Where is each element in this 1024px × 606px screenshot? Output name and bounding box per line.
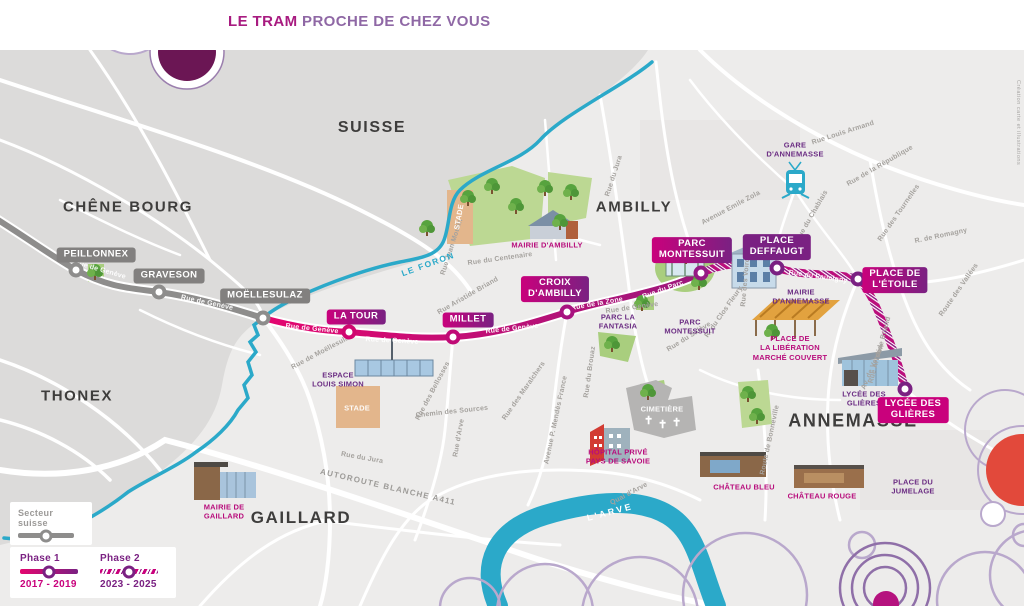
region-label-suisse: SUISSE: [338, 119, 406, 137]
legend-phase1-label: Phase 1: [20, 553, 78, 564]
credits-text: Création carte et illustrations: [1015, 80, 1021, 165]
legend-phase2-line: [100, 569, 158, 574]
region-label-thonex: THONEX: [41, 388, 113, 405]
tram-stop-label-place-de-l-etoile: PLACE DE L'ÉTOILE: [862, 267, 927, 293]
tram-stop-label-la-tour: LA TOUR: [327, 310, 386, 325]
landmark-label-mairie-d-ambilly: MAIRIE D'AMBILLY: [511, 240, 582, 249]
map-canvas: ✝✝✝: [0, 0, 1024, 606]
legend-phase2-stop-dot: [123, 565, 136, 578]
legend-swiss-label: Secteur suisse: [18, 508, 84, 528]
landmark-label-chateau-bleu: CHÂTEAU BLEU: [713, 482, 775, 491]
building-chateau-bleu: [700, 452, 766, 477]
tram-stop-label-millet: MILLET: [443, 313, 494, 328]
landmark-label-gare-d-annemasse: GARE D'ANNEMASSE: [766, 141, 823, 160]
region-label-ambilly: AMBILLY: [596, 199, 672, 216]
legend-phases: Phase 1 2017 - 2019 Phase 2 2023 - 2025: [10, 547, 176, 598]
header-band: LE TRAM PROCHE DE CHEZ VOUS: [0, 0, 1024, 50]
page-title: LE TRAM PROCHE DE CHEZ VOUS: [228, 13, 491, 30]
tram-stop-label-croix-d-ambilly: CROIX D'AMBILLY: [521, 276, 589, 302]
svg-text:✝: ✝: [644, 415, 653, 427]
tram-map-poster: ✝✝✝: [0, 0, 1024, 606]
landmark-label-parc-montessuit: PARC MONTESSUIT: [664, 318, 715, 337]
landmark-label-place-du-jumelage: PLACE DU JUMELAGE: [891, 478, 934, 497]
tram-stop-croix-d-ambilly: [560, 305, 575, 320]
tram-stop-place-deffaugt: [770, 261, 785, 276]
tram-stop-la-tour: [342, 325, 357, 340]
legend-swiss-line: [18, 533, 74, 538]
tram-stop-label-place-deffaugt: PLACE DEFFAUGT: [743, 234, 811, 260]
svg-text:✝: ✝: [658, 419, 667, 431]
tram-stop-lycee-des-glieres: [898, 382, 913, 397]
legend-phase2: Phase 2 2023 - 2025: [100, 553, 158, 592]
building-mairie-gaillard: [194, 462, 256, 500]
landmark-label-mairie-d-annemasse: MAIRIE D'ANNEMASSE: [772, 288, 829, 307]
tram-stop-label-lycee-des-glieres: LYCÉE DES GLIÈRES: [878, 397, 949, 423]
landmark-label-hopital-prive-pays-de-savoie: HÔPITAL PRIVÉ PAYS DE SAVOIE: [586, 448, 650, 467]
landmark-label-chateau-rouge: CHÂTEAU ROUGE: [788, 491, 857, 500]
tram-stop-parc-montessuit: [694, 266, 709, 281]
tram-stop-label-parc-montessuit: PARC MONTESSUIT: [652, 237, 732, 263]
tram-stop-peillonnex: [69, 263, 84, 278]
landmark-label-cimetiere: CIMETIÈRE: [641, 404, 684, 413]
tram-stop-label-moellesulaz: MOËLLESULAZ: [220, 289, 310, 304]
title-rest: PROCHE DE CHEZ VOUS: [302, 13, 490, 30]
decor-circles-bottom-right: [440, 524, 1024, 606]
legend-phase1: Phase 1 2017 - 2019: [20, 553, 78, 592]
legend-swiss-stop-dot: [40, 529, 53, 542]
legend-phase1-years: 2017 - 2019: [20, 579, 78, 590]
landmark-label-espace-louis-simon: ESPACE LOUIS SIMON: [312, 371, 364, 390]
landmark-label-place-de-la-liberation-marche-couvert: PLACE DE LA LIBÉRATION MARCHÉ COUVERT: [753, 334, 827, 362]
landmark-label-parc-la-fantasia: PARC LA FANTASIA: [599, 313, 638, 332]
landmark-label-mairie-de-gaillard: MAIRIE DE GAILLARD: [204, 503, 245, 522]
region-label-chene-bourg: CHÊNE BOURG: [63, 199, 193, 216]
title-bold: LE TRAM: [228, 13, 297, 30]
legend-phase2-label: Phase 2: [100, 553, 158, 564]
tram-stop-graveson: [152, 285, 167, 300]
tram-stop-label-peillonnex: PEILLONNEX: [57, 248, 136, 263]
tram-stop-label-graveson: GRAVESON: [134, 269, 205, 284]
legend-phase1-line: [20, 569, 78, 574]
legend-swiss-sector: Secteur suisse: [10, 502, 92, 545]
legend-phase1-stop-dot: [43, 565, 56, 578]
legend-phase2-years: 2023 - 2025: [100, 579, 158, 590]
tram-stop-moellesulaz: [256, 311, 271, 326]
tram-stop-millet: [446, 330, 461, 345]
svg-text:✝: ✝: [672, 417, 681, 429]
region-label-gaillard: GAILLARD: [251, 508, 352, 528]
landmark-label-stade: STADE: [344, 403, 370, 412]
building-chateau-rouge: [794, 465, 864, 488]
